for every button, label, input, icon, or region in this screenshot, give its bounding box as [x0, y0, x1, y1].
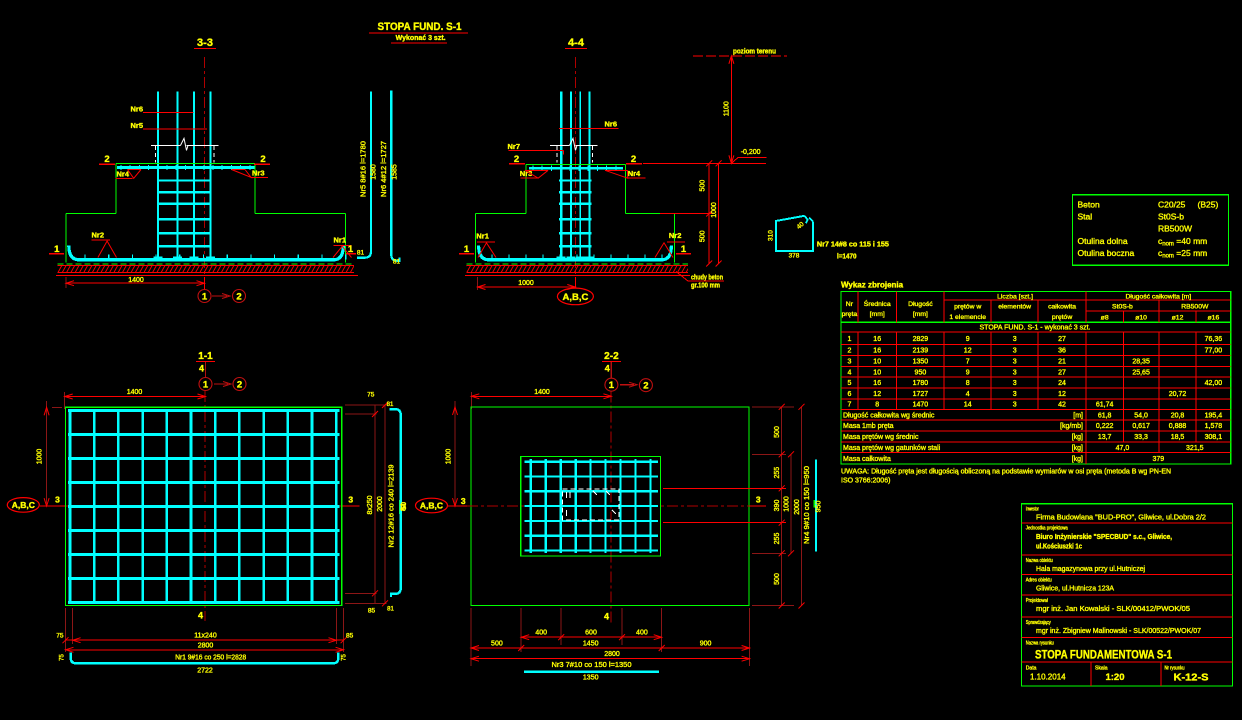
svg-text:85: 85 — [346, 633, 354, 640]
svg-text:8: 8 — [966, 380, 970, 387]
svg-text:16: 16 — [873, 348, 881, 355]
svg-text:Nr6: Nr6 — [131, 105, 144, 114]
svg-text:ø12: ø12 — [1172, 314, 1184, 321]
svg-text:1585: 1585 — [391, 164, 398, 180]
svg-text:75: 75 — [367, 392, 375, 399]
svg-text:3: 3 — [1013, 391, 1017, 398]
svg-text:2000: 2000 — [794, 499, 801, 515]
svg-text:Nr3: Nr3 — [252, 169, 265, 178]
svg-text:Masa 1mb pręta: Masa 1mb pręta — [843, 423, 894, 430]
svg-text:12: 12 — [873, 391, 881, 398]
svg-text:ul.Kościuszki 1c: ul.Kościuszki 1c — [1036, 542, 1082, 551]
svg-text:2800: 2800 — [604, 651, 620, 658]
svg-text:21: 21 — [1058, 358, 1066, 365]
svg-text:Nr rysunku: Nr rysunku — [1165, 665, 1185, 671]
svg-text:8: 8 — [875, 402, 879, 409]
svg-text:1,578: 1,578 — [1205, 423, 1223, 430]
svg-text:600: 600 — [585, 630, 597, 637]
svg-text:50: 50 — [399, 502, 408, 510]
svg-text:379: 379 — [1153, 456, 1165, 463]
svg-text:3: 3 — [1013, 369, 1017, 376]
svg-text:Jednostka projektowa: Jednostka projektowa — [1026, 526, 1068, 532]
svg-text:Sprawdzający: Sprawdzający — [1026, 620, 1051, 626]
svg-text:310: 310 — [768, 230, 775, 241]
svg-text:Nr4: Nr4 — [628, 169, 641, 178]
svg-text:RB500W: RB500W — [1158, 224, 1192, 234]
svg-text:poziom terenu: poziom terenu — [733, 47, 776, 56]
svg-text:prętów w: prętów w — [954, 304, 981, 311]
svg-text:42: 42 — [1058, 402, 1066, 409]
svg-text:11x240: 11x240 — [194, 633, 217, 640]
svg-text:ISO 3766:2006): ISO 3766:2006) — [841, 478, 890, 485]
svg-text:81: 81 — [387, 607, 394, 613]
svg-text:gr.100 mm: gr.100 mm — [691, 281, 720, 290]
svg-text:4: 4 — [198, 611, 203, 621]
svg-text:2722: 2722 — [197, 668, 213, 675]
svg-text:całkowita: całkowita — [1048, 304, 1076, 311]
svg-text:Skala: Skala — [1095, 665, 1108, 671]
svg-text:Otulina dolna: Otulina dolna — [1078, 236, 1128, 246]
svg-text:1000: 1000 — [711, 202, 718, 218]
svg-text:[mm]: [mm] — [913, 311, 928, 318]
svg-text:1727: 1727 — [913, 391, 929, 398]
svg-text:2: 2 — [237, 379, 242, 390]
svg-text:3: 3 — [756, 495, 761, 505]
svg-text:Wykaz zbrojenia: Wykaz zbrojenia — [841, 281, 904, 290]
svg-text:3: 3 — [1013, 336, 1017, 343]
svg-text:13,7: 13,7 — [1098, 434, 1112, 441]
svg-text:3: 3 — [847, 358, 851, 365]
svg-text:ø10: ø10 — [1135, 314, 1147, 321]
svg-text:Beton: Beton — [1078, 199, 1100, 209]
svg-text:3: 3 — [1013, 380, 1017, 387]
svg-text:1:20: 1:20 — [1105, 672, 1124, 683]
svg-text:10: 10 — [873, 369, 881, 376]
svg-text:77,00: 77,00 — [1205, 348, 1223, 355]
svg-text:2000: 2000 — [377, 496, 384, 512]
svg-text:STOPA FUNDAMENTOWA S-1: STOPA FUNDAMENTOWA S-1 — [1035, 650, 1173, 662]
svg-text:1000: 1000 — [446, 449, 453, 465]
svg-text:mgr inż. Jan Kowalski - SLK/00: mgr inż. Jan Kowalski - SLK/00412/PWOK/0… — [1036, 604, 1190, 613]
svg-text:61,74: 61,74 — [1096, 402, 1114, 409]
svg-text:Nr2: Nr2 — [669, 231, 682, 240]
svg-text:500: 500 — [491, 641, 503, 648]
svg-text:28,35: 28,35 — [1132, 358, 1150, 365]
svg-text:54,0: 54,0 — [1134, 412, 1148, 419]
svg-text:1: 1 — [203, 379, 209, 390]
svg-text:9: 9 — [966, 369, 970, 376]
svg-text:Masa całkowita: Masa całkowita — [843, 456, 891, 463]
svg-text:[kg]: [kg] — [1072, 434, 1083, 441]
svg-text:RB500W: RB500W — [1181, 304, 1209, 311]
svg-text:Nr7: Nr7 — [508, 142, 521, 151]
svg-text:3: 3 — [1013, 348, 1017, 355]
svg-text:20,72: 20,72 — [1169, 391, 1187, 398]
svg-text:Nr4 9#10 co 150 l=950: Nr4 9#10 co 150 l=950 — [804, 466, 811, 544]
svg-text:308,1: 308,1 — [1205, 434, 1223, 441]
svg-text:1470: 1470 — [913, 402, 929, 409]
svg-text:3: 3 — [348, 495, 353, 505]
svg-text:prętów: prętów — [1052, 314, 1072, 321]
svg-text:500: 500 — [774, 426, 781, 438]
svg-text:4: 4 — [605, 364, 610, 374]
svg-text:3: 3 — [1013, 402, 1017, 409]
svg-text:3-3: 3-3 — [197, 37, 213, 49]
svg-text:7: 7 — [966, 358, 970, 365]
svg-text:[mm]: [mm] — [870, 311, 885, 318]
svg-text:Adres obiektu: Adres obiektu — [1026, 577, 1052, 583]
svg-text:3: 3 — [55, 495, 60, 505]
svg-text:6: 6 — [847, 391, 851, 398]
svg-text:47,0: 47,0 — [1116, 445, 1130, 452]
svg-text:5: 5 — [847, 380, 851, 387]
svg-text:Nr1 9#16 co 250 l=2828: Nr1 9#16 co 250 l=2828 — [175, 654, 246, 661]
svg-text:Stal: Stal — [1078, 212, 1093, 222]
svg-text:St0S-b: St0S-b — [1158, 212, 1184, 222]
svg-text:378: 378 — [789, 253, 800, 260]
svg-text:12: 12 — [1058, 391, 1066, 398]
svg-text:mgr inż. Zbigniew Malinowski -: mgr inż. Zbigniew Malinowski - SLK/00522… — [1036, 626, 1201, 635]
svg-text:Otulina boczna: Otulina boczna — [1078, 248, 1135, 258]
svg-text:[kg/mb]: [kg/mb] — [1060, 423, 1083, 430]
svg-text:61,8: 61,8 — [1098, 412, 1112, 419]
svg-text:0,222: 0,222 — [1096, 423, 1114, 430]
svg-text:321,5: 321,5 — [1186, 445, 1204, 452]
svg-text:Masa prętów wg gatunków stali: Masa prętów wg gatunków stali — [843, 445, 941, 452]
svg-text:Nr3 7#10 co 150 l=1350: Nr3 7#10 co 150 l=1350 — [552, 662, 632, 669]
svg-text:1-1: 1-1 — [198, 351, 213, 362]
svg-text:4-4: 4-4 — [568, 37, 585, 49]
svg-text:Średnica: Średnica — [864, 299, 891, 308]
svg-text:25,65: 25,65 — [1132, 369, 1150, 376]
svg-text:ø16: ø16 — [1208, 314, 1220, 321]
svg-text:950: 950 — [816, 501, 823, 513]
svg-text:Nr: Nr — [846, 301, 854, 308]
svg-text:1.10.2014: 1.10.2014 — [1030, 673, 1066, 682]
svg-text:1100: 1100 — [724, 101, 731, 116]
svg-text:75: 75 — [342, 654, 348, 661]
svg-text:2829: 2829 — [913, 336, 929, 343]
svg-text:(B25): (B25) — [1198, 199, 1219, 209]
svg-text:33,3: 33,3 — [1134, 434, 1148, 441]
svg-text:St0S-b: St0S-b — [1112, 304, 1133, 311]
svg-text:3: 3 — [461, 496, 466, 506]
svg-text:2: 2 — [104, 154, 109, 165]
svg-text:0,888: 0,888 — [1169, 423, 1187, 430]
svg-text:3: 3 — [1013, 358, 1017, 365]
svg-text:Data: Data — [1026, 665, 1037, 671]
svg-text:7: 7 — [847, 402, 851, 409]
svg-text:81: 81 — [357, 250, 365, 257]
svg-text:Nr4: Nr4 — [117, 170, 130, 179]
svg-text:Nr2 12#16 co 240 l=2139: Nr2 12#16 co 240 l=2139 — [388, 464, 395, 547]
svg-text:Nr1: Nr1 — [334, 236, 347, 245]
svg-text:Nr7 14#8 co 115 i 155: Nr7 14#8 co 115 i 155 — [817, 242, 889, 249]
svg-text:Nazwa rysunku: Nazwa rysunku — [1026, 641, 1054, 647]
svg-text:900: 900 — [700, 641, 712, 648]
svg-text:390: 390 — [774, 500, 781, 512]
svg-text:81: 81 — [393, 259, 401, 266]
svg-text:1 elemencie: 1 elemencie — [949, 314, 986, 321]
svg-text:2800: 2800 — [198, 642, 214, 649]
svg-text:24: 24 — [1058, 380, 1066, 387]
svg-text:pręta: pręta — [842, 311, 858, 318]
svg-text:Nr1: Nr1 — [476, 232, 489, 241]
svg-text:1780: 1780 — [913, 380, 929, 387]
svg-text:elementów: elementów — [998, 304, 1031, 311]
svg-text:Hala magazynowa przy ul.Hutnic: Hala magazynowa przy ul.Hutniczej — [1036, 564, 1145, 573]
svg-text:500: 500 — [699, 230, 706, 242]
svg-text:2139: 2139 — [913, 348, 929, 355]
svg-text:1350: 1350 — [583, 674, 599, 681]
svg-text:1: 1 — [202, 291, 208, 302]
svg-text:UWAGA: Długość pręta jest dług: UWAGA: Długość pręta jest długością obli… — [841, 469, 1171, 476]
svg-text:STOPA FUND. S-1: STOPA FUND. S-1 — [378, 21, 462, 33]
svg-text:1450: 1450 — [583, 641, 599, 648]
svg-text:2: 2 — [236, 291, 241, 302]
svg-text:Wykonać 3 szt.: Wykonać 3 szt. — [396, 35, 446, 42]
svg-text:Długość całkowita [m]: Długość całkowita [m] — [1125, 293, 1191, 300]
svg-text:500: 500 — [774, 573, 781, 585]
svg-text:2: 2 — [847, 348, 851, 355]
svg-text:1400: 1400 — [127, 389, 143, 396]
svg-text:255: 255 — [774, 467, 781, 479]
svg-text:255: 255 — [774, 533, 781, 545]
svg-text:A,B,C: A,B,C — [420, 501, 443, 511]
svg-text:27: 27 — [1058, 369, 1066, 376]
svg-text:A,B,C: A,B,C — [562, 292, 588, 303]
svg-text:C20/25: C20/25 — [1158, 199, 1186, 209]
svg-text:Gliwice, ul.Hutnicza 123A: Gliwice, ul.Hutnicza 123A — [1036, 584, 1114, 593]
svg-text:[kg]: [kg] — [1072, 445, 1083, 452]
svg-text:Długość: Długość — [908, 301, 933, 308]
svg-text:10: 10 — [873, 358, 881, 365]
svg-text:1400: 1400 — [128, 277, 144, 284]
svg-text:400: 400 — [636, 630, 648, 637]
svg-text:2: 2 — [260, 154, 265, 165]
svg-text:Nr6: Nr6 — [605, 120, 618, 129]
svg-text:l=1470: l=1470 — [837, 254, 857, 261]
svg-text:K-12-S: K-12-S — [1174, 672, 1209, 684]
svg-text:Liczba [szt.]: Liczba [szt.] — [997, 293, 1033, 300]
svg-text:A,B,C: A,B,C — [12, 500, 35, 510]
svg-text:-0,200: -0,200 — [741, 149, 761, 156]
svg-text:[kg]: [kg] — [1072, 456, 1083, 463]
svg-text:1400: 1400 — [534, 389, 550, 396]
svg-text:Nr5: Nr5 — [131, 121, 144, 130]
svg-text:Nr2: Nr2 — [92, 231, 105, 240]
svg-text:20,8: 20,8 — [1171, 412, 1185, 419]
svg-text:400: 400 — [535, 630, 547, 637]
svg-text:1: 1 — [847, 336, 851, 343]
svg-text:Długość całkowita wg średnic: Długość całkowita wg średnic — [843, 412, 935, 419]
svg-text:Biuro Inżynierskie "SPECBUD" s: Biuro Inżynierskie "SPECBUD" s.c., Gliwi… — [1036, 532, 1172, 541]
svg-text:16: 16 — [873, 380, 881, 387]
svg-text:12: 12 — [964, 348, 972, 355]
svg-text:ø8: ø8 — [1101, 314, 1109, 321]
svg-text:Projektował: Projektował — [1026, 598, 1049, 604]
svg-text:4: 4 — [604, 612, 609, 622]
svg-text:Masa prętów wg średnic: Masa prętów wg średnic — [843, 434, 919, 441]
svg-text:4: 4 — [847, 369, 851, 376]
svg-text:85: 85 — [368, 608, 376, 615]
svg-text:Nr6 4#12 l=1727: Nr6 4#12 l=1727 — [381, 141, 388, 197]
svg-text:76,36: 76,36 — [1205, 336, 1223, 343]
svg-text:16: 16 — [873, 336, 881, 343]
svg-text:18,5: 18,5 — [1171, 434, 1185, 441]
svg-text:1350: 1350 — [913, 358, 929, 365]
svg-text:81: 81 — [387, 402, 394, 408]
svg-text:Firma Budowlana "BUD-PRO", Gli: Firma Budowlana "BUD-PRO", Gliwice, ul.D… — [1036, 513, 1206, 522]
svg-text:4: 4 — [199, 364, 204, 374]
svg-text:195,4: 195,4 — [1205, 412, 1223, 419]
svg-text:STOPA FUND. S-1 - wykonać 3 sz: STOPA FUND. S-1 - wykonać 3 szt. — [980, 325, 1091, 332]
svg-text:500: 500 — [699, 180, 706, 192]
svg-text:27: 27 — [1058, 336, 1066, 343]
svg-text:14: 14 — [964, 402, 972, 409]
svg-text:75: 75 — [60, 654, 66, 661]
svg-text:2-2: 2-2 — [604, 351, 619, 362]
svg-text:950: 950 — [915, 369, 927, 376]
svg-text:4: 4 — [966, 391, 970, 398]
svg-text:42,00: 42,00 — [1205, 380, 1223, 387]
svg-text:1: 1 — [609, 380, 615, 391]
svg-text:8x250: 8x250 — [367, 495, 374, 514]
svg-text:Nr5 8#16 l=1780: Nr5 8#16 l=1780 — [361, 141, 368, 197]
svg-text:1580: 1580 — [370, 164, 377, 180]
svg-text:2: 2 — [643, 381, 648, 392]
svg-text:9: 9 — [966, 336, 970, 343]
svg-text:75: 75 — [56, 633, 64, 640]
svg-text:[m]: [m] — [1073, 412, 1083, 419]
svg-text:36: 36 — [1058, 348, 1066, 355]
svg-text:1000: 1000 — [37, 449, 44, 465]
svg-text:1000: 1000 — [518, 280, 534, 287]
svg-text:1000: 1000 — [784, 496, 791, 512]
svg-text:0,617: 0,617 — [1132, 423, 1150, 430]
